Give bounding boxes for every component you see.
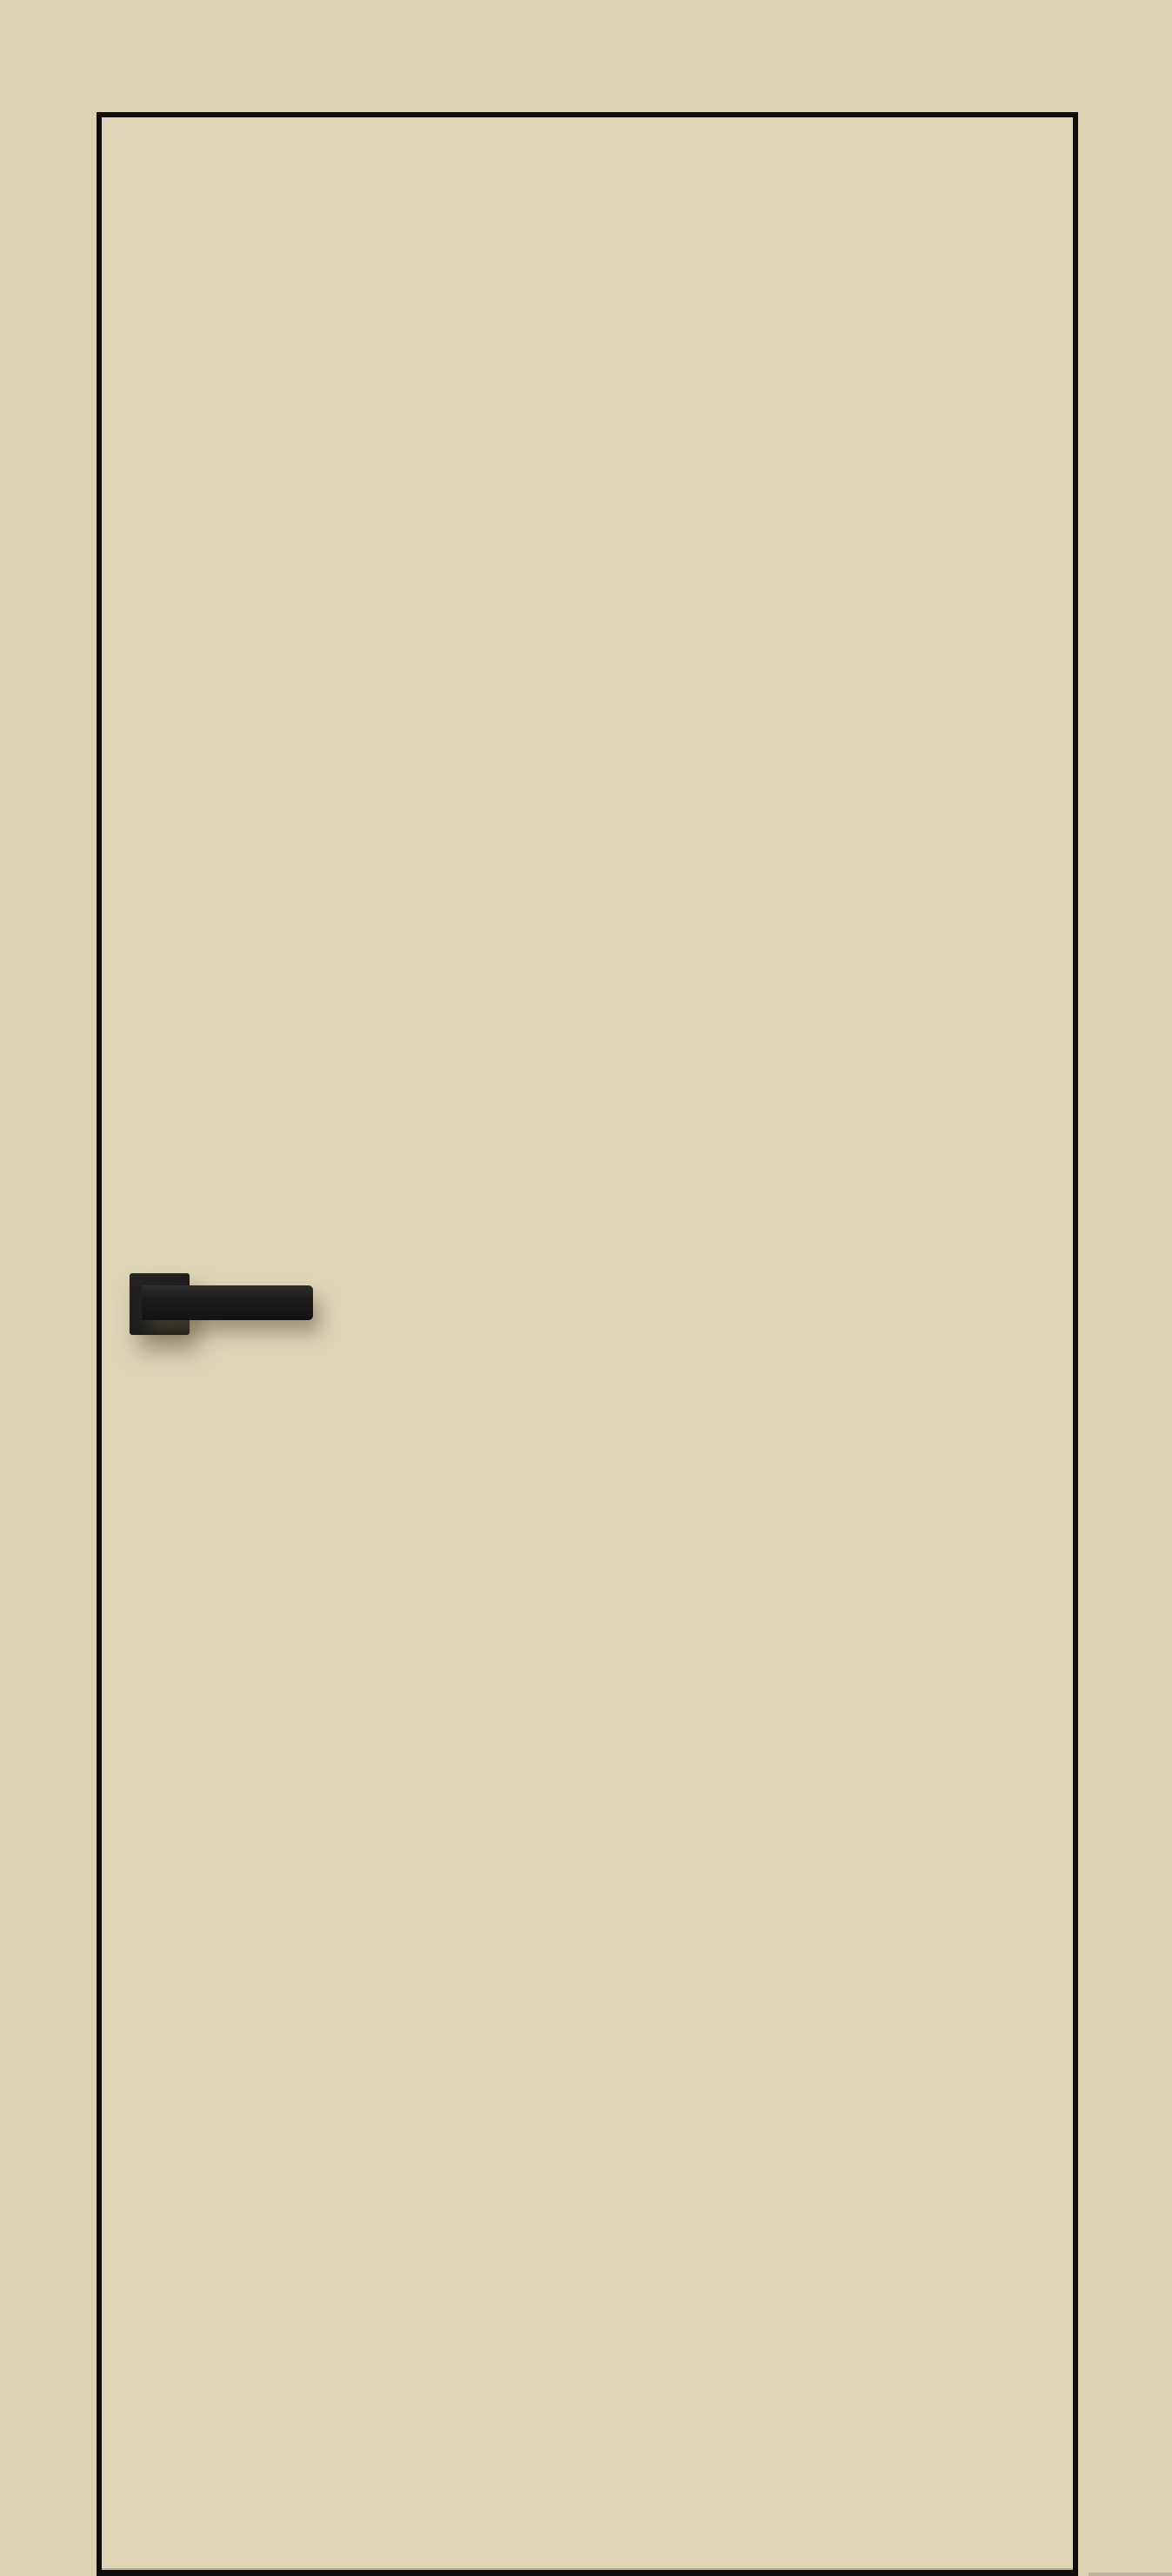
door-handle-lever <box>142 1285 313 1320</box>
floor-shadow <box>1089 2573 1172 2576</box>
door-bottom-seam <box>102 2568 1073 2570</box>
door-panel <box>97 112 1078 2576</box>
product-image-background <box>0 0 1172 2576</box>
